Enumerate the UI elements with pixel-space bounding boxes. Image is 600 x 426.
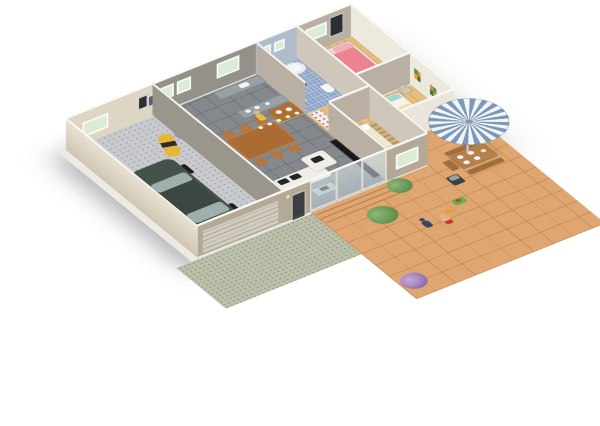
bedroom2-front-window	[396, 146, 419, 170]
entry-lamp	[287, 195, 290, 199]
kitchen-window	[217, 55, 240, 79]
floor-plan-scene	[0, 0, 600, 426]
door-mullion	[336, 170, 338, 204]
dining-window	[177, 76, 191, 95]
door-mullion	[361, 160, 363, 194]
colorful-wall-art	[414, 68, 420, 83]
umbrella-hub	[464, 119, 474, 125]
